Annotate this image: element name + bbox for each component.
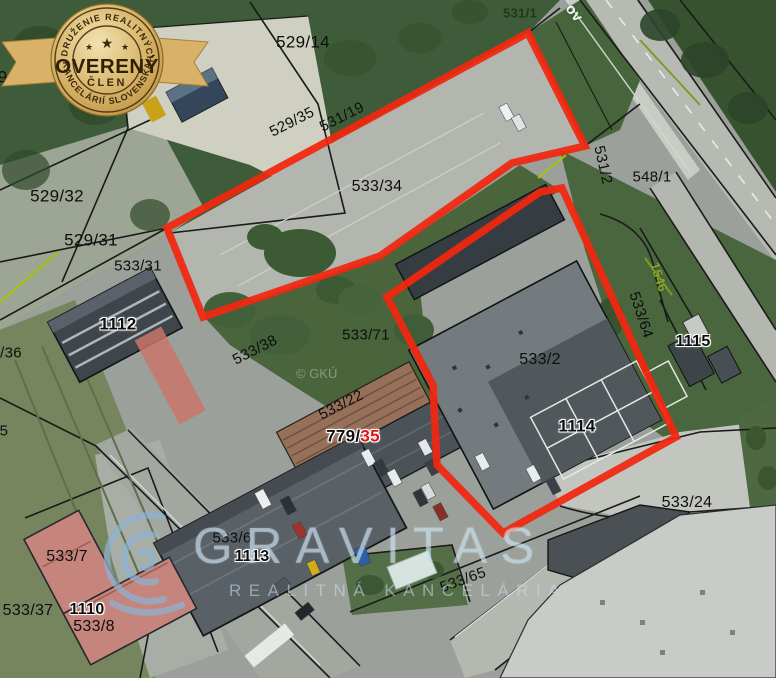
parcel-label-533-37: 533/37 (3, 603, 54, 619)
parcel-label-533-71: 533/71 (342, 328, 390, 343)
parcel-label-531-1: 531/1 (503, 7, 537, 20)
parcel-label-533-8: 533/8 (73, 619, 115, 635)
building-label-1115: 1115 (675, 334, 710, 350)
badge-subtitle: ČLEN (87, 76, 127, 89)
parcel-label-partial-5: 5 (0, 424, 8, 439)
badge-title: OVERENÝ (55, 54, 159, 78)
parcel-label-548-1: 548/1 (632, 170, 671, 185)
parcel-label-529-32: 529/32 (30, 188, 84, 205)
building-label-1113: 1113 (234, 549, 269, 565)
parcel-label-779-prefix: 779/ (326, 427, 360, 446)
parcel-label-36: /36 (0, 346, 22, 361)
parcel-label-779-35: 779/35 (326, 428, 380, 445)
parcel-label-533-7: 533/7 (46, 549, 88, 565)
parcel-label-533-34: 533/34 (352, 179, 403, 195)
parcel-label-533-24: 533/24 (662, 495, 713, 511)
building-label-1110: 1110 (69, 602, 104, 618)
badge-star-right-icon: ★ (121, 42, 129, 52)
map-attribution: © GKÚ (296, 366, 337, 381)
badge-star-left-icon: ★ (85, 42, 93, 52)
badge-star-center-icon: ★ (101, 35, 114, 51)
parcel-label-533-2: 533/2 (519, 352, 561, 368)
parcel-label-533-6: 533/6 (212, 531, 251, 546)
map-canvas[interactable]: 531/1 ov 529/14 29/33 529/35 531/19 533/… (0, 0, 776, 678)
parcel-label-533-31: 533/31 (114, 259, 162, 274)
building-label-1114: 1114 (558, 418, 595, 435)
certified-member-badge: ZDRUŽENIE REALITNÝCH KANCELÁRIÍ SLOVENSK… (0, 0, 210, 124)
parcel-label-529-14: 529/14 (276, 34, 330, 51)
building-label-1112: 1112 (99, 316, 136, 333)
parcel-label-35-highlight: 35 (360, 427, 380, 446)
parcel-label-529-31: 529/31 (64, 232, 118, 249)
